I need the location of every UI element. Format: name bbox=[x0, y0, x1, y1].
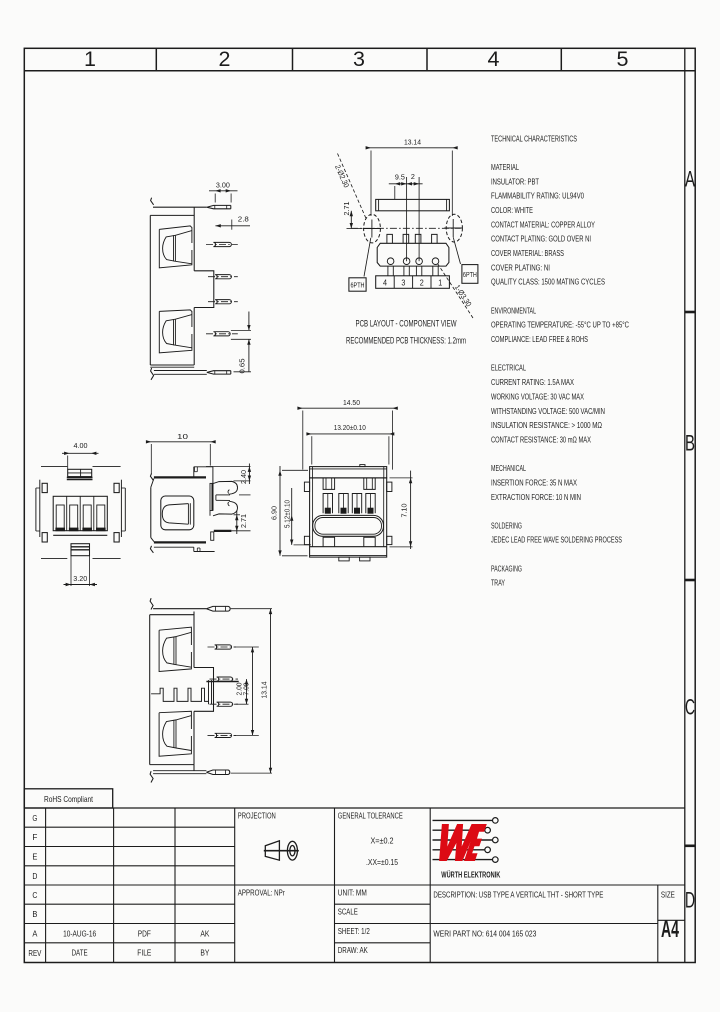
svg-text:MATERIAL: MATERIAL bbox=[491, 162, 519, 172]
svg-text:1: 1 bbox=[438, 279, 442, 288]
svg-text:COLOR: WHITE: COLOR: WHITE bbox=[491, 205, 533, 215]
svg-text:2.40: 2.40 bbox=[239, 470, 248, 484]
svg-text:E: E bbox=[32, 852, 37, 862]
svg-text:4.00: 4.00 bbox=[74, 441, 88, 450]
svg-text:QUALITY CLASS: 1500 MATING CYC: QUALITY CLASS: 1500 MATING CYCLES bbox=[491, 277, 605, 287]
svg-text:FLAMMABILITY RATING: UL94V0: FLAMMABILITY RATING: UL94V0 bbox=[491, 191, 584, 201]
svg-text:EXTRACTION FORCE: 10 N MIN: EXTRACTION FORCE: 10 N MIN bbox=[491, 492, 581, 502]
svg-text:WORKING VOLTAGE: 30 VAC MAX: WORKING VOLTAGE: 30 VAC MAX bbox=[491, 391, 584, 401]
svg-text:2.8: 2.8 bbox=[238, 215, 249, 224]
svg-text:OPERATING TEMPERATURE: -55°C U: OPERATING TEMPERATURE: -55°C UP TO +85°C bbox=[491, 320, 629, 330]
svg-text:D: D bbox=[685, 888, 695, 913]
svg-text:PDF: PDF bbox=[138, 929, 151, 939]
svg-text:RECOMMENDED PCB THICKNESS: 1.2: RECOMMENDED PCB THICKNESS: 1.2mm bbox=[346, 336, 466, 346]
svg-text:7.10: 7.10 bbox=[399, 504, 408, 518]
svg-text:COVER MATERIAL: BRASS: COVER MATERIAL: BRASS bbox=[491, 248, 564, 258]
svg-text:PCB LAYOUT - COMPONENT VIEW: PCB LAYOUT - COMPONENT VIEW bbox=[356, 319, 457, 329]
svg-text:D: D bbox=[32, 871, 37, 881]
svg-text:PROJECTION: PROJECTION bbox=[238, 810, 276, 820]
svg-text:4: 4 bbox=[488, 47, 500, 71]
svg-text:2: 2 bbox=[420, 279, 424, 288]
svg-text:10-AUG-16: 10-AUG-16 bbox=[63, 929, 96, 939]
svg-text:5.12±0.10: 5.12±0.10 bbox=[283, 500, 292, 528]
svg-text:JEDEC LEAD FREE WAVE SOLDERING: JEDEC LEAD FREE WAVE SOLDERING PROCESS bbox=[491, 535, 622, 545]
svg-text:SIZE: SIZE bbox=[661, 890, 675, 900]
svg-text:DESCRIPTION: USB TYPE A VERTI: DESCRIPTION: USB TYPE A VERTICAL THT - S… bbox=[433, 889, 603, 899]
svg-text:5: 5 bbox=[617, 47, 629, 71]
svg-text:10: 10 bbox=[177, 432, 188, 441]
svg-text:DATE: DATE bbox=[72, 948, 88, 958]
svg-text:ENVIRONMENTAL: ENVIRONMENTAL bbox=[491, 305, 536, 315]
svg-text:9.5: 9.5 bbox=[395, 173, 405, 182]
svg-text:ELECTRICAL: ELECTRICAL bbox=[491, 363, 526, 373]
svg-text:B: B bbox=[32, 909, 37, 919]
svg-text:.XX=±0.15: .XX=±0.15 bbox=[366, 857, 398, 867]
svg-text:A: A bbox=[685, 167, 695, 192]
svg-text:RoHS Compliant: RoHS Compliant bbox=[44, 794, 94, 804]
svg-text:3.00: 3.00 bbox=[216, 181, 230, 190]
svg-text:COMPLIANCE: LEAD FREE & ROHS: COMPLIANCE: LEAD FREE & ROHS bbox=[491, 334, 588, 344]
svg-text:UNIT: MM: UNIT: MM bbox=[338, 887, 367, 897]
svg-text:7.00: 7.00 bbox=[241, 683, 250, 696]
svg-text:2: 2 bbox=[411, 172, 415, 181]
svg-text:G: G bbox=[32, 813, 37, 823]
svg-text:6.90: 6.90 bbox=[269, 506, 278, 520]
svg-text:WERI PART NO: 614 004 165 023: WERI PART NO: 614 004 165 023 bbox=[433, 929, 536, 939]
svg-text:WÜRTH ELEKTRONIK: WÜRTH ELEKTRONIK bbox=[441, 870, 501, 880]
svg-text:3: 3 bbox=[401, 279, 405, 288]
svg-text:3.20: 3.20 bbox=[73, 574, 87, 583]
svg-text:FILE: FILE bbox=[137, 948, 151, 958]
svg-text:MECHANICAL: MECHANICAL bbox=[491, 463, 526, 473]
svg-text:1: 1 bbox=[84, 47, 96, 71]
svg-text:2: 2 bbox=[219, 47, 231, 71]
svg-text:A4: A4 bbox=[661, 916, 679, 943]
svg-text:2.71: 2.71 bbox=[239, 514, 248, 528]
svg-text:CONTACT RESISTANCE: 30 mΩ MAX: CONTACT RESISTANCE: 30 mΩ MAX bbox=[491, 435, 591, 445]
svg-text:BY: BY bbox=[200, 948, 209, 958]
svg-text:SHEET: 1/2: SHEET: 1/2 bbox=[338, 926, 370, 936]
svg-text:F: F bbox=[32, 832, 37, 842]
svg-text:3: 3 bbox=[353, 47, 365, 71]
svg-text:13.14: 13.14 bbox=[259, 682, 268, 699]
svg-text:13.14: 13.14 bbox=[404, 137, 421, 146]
svg-text:6PTH: 6PTH bbox=[351, 281, 365, 290]
svg-text:B: B bbox=[685, 431, 695, 456]
svg-text:TECHNICAL CHARACTERISTICS: TECHNICAL CHARACTERISTICS bbox=[491, 133, 577, 143]
svg-text:14.50: 14.50 bbox=[343, 398, 360, 407]
svg-text:X=±0.2: X=±0.2 bbox=[371, 836, 394, 846]
svg-text:SCALE: SCALE bbox=[338, 907, 358, 917]
svg-text:REV: REV bbox=[28, 948, 41, 958]
svg-text:AK: AK bbox=[200, 929, 209, 939]
svg-text:APPROVAL: NPr: APPROVAL: NPr bbox=[238, 887, 285, 897]
svg-text:COVER PLATING: NI: COVER PLATING: NI bbox=[491, 262, 550, 272]
svg-text:WITHSTANDING VOLTAGE: 500 VAC/: WITHSTANDING VOLTAGE: 500 VAC/MIN bbox=[491, 406, 605, 416]
svg-text:6PTH: 6PTH bbox=[463, 270, 477, 279]
svg-text:4: 4 bbox=[383, 279, 387, 288]
svg-text:CONTACT PLATING: GOLD OVER NI: CONTACT PLATING: GOLD OVER NI bbox=[491, 234, 591, 244]
svg-text:C: C bbox=[32, 890, 37, 900]
svg-text:INSULATOR: PBT: INSULATOR: PBT bbox=[491, 176, 540, 186]
svg-text:PACKAGING: PACKAGING bbox=[491, 563, 522, 573]
svg-text:CURRENT RATING: 1.5A MAX: CURRENT RATING: 1.5A MAX bbox=[491, 377, 574, 387]
svg-text:A: A bbox=[32, 929, 37, 939]
svg-text:INSULATION RESISTANCE: > 1000: INSULATION RESISTANCE: > 1000 MΩ bbox=[491, 420, 602, 430]
svg-text:2.71: 2.71 bbox=[342, 202, 351, 216]
svg-text:CONTACT MATERIAL: COPPER ALLOY: CONTACT MATERIAL: COPPER ALLOY bbox=[491, 219, 595, 229]
svg-text:GENERAL TOLERANCE: GENERAL TOLERANCE bbox=[338, 810, 403, 820]
svg-text:DRAW: AK: DRAW: AK bbox=[338, 945, 368, 955]
svg-text:13.20±0.10: 13.20±0.10 bbox=[334, 423, 366, 432]
svg-text:0.65: 0.65 bbox=[238, 359, 247, 374]
svg-text:C: C bbox=[685, 695, 695, 720]
svg-text:SOLDERING: SOLDERING bbox=[491, 520, 522, 530]
svg-text:INSERTION FORCE: 35 N MAX: INSERTION FORCE: 35 N MAX bbox=[491, 477, 577, 487]
svg-text:TRAY: TRAY bbox=[491, 578, 505, 588]
